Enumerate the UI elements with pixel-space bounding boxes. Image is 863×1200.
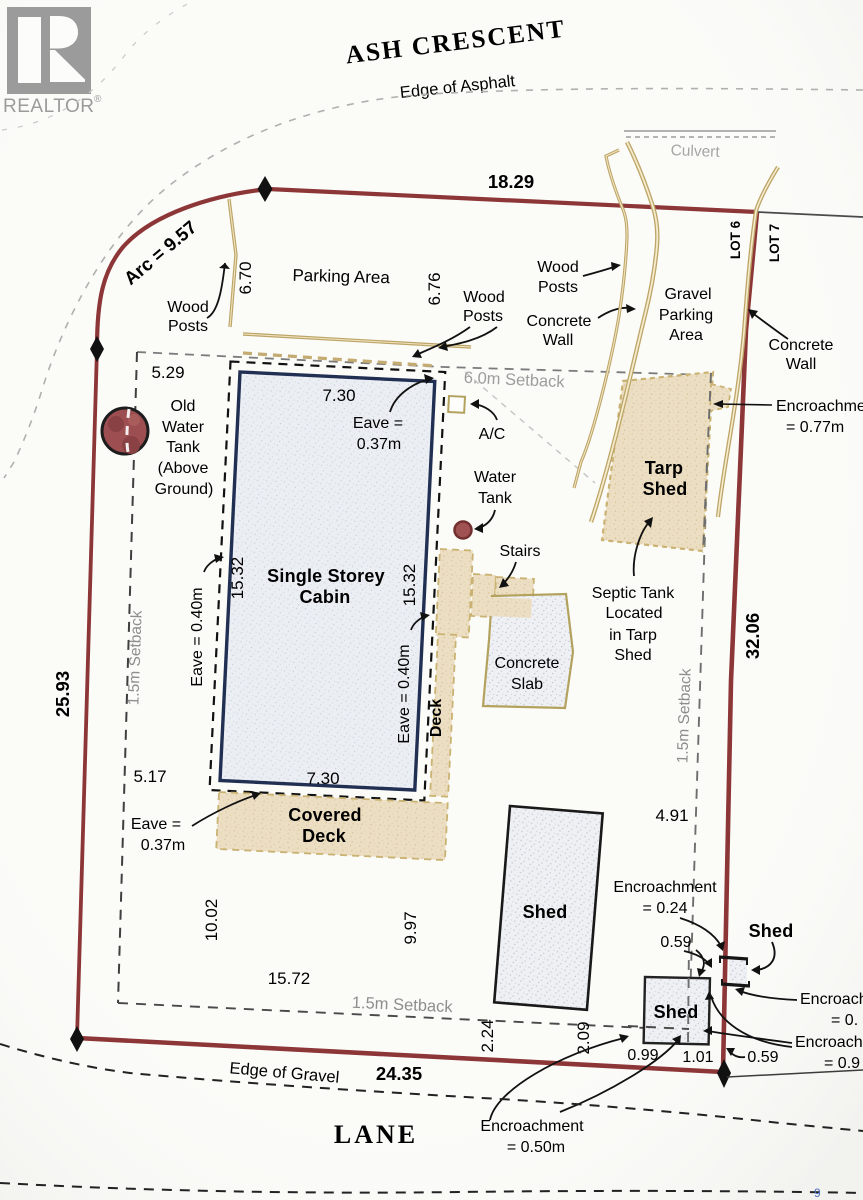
svg-text:= 0.77m: = 0.77m (786, 419, 844, 436)
svg-text:6.70: 6.70 (236, 261, 255, 294)
svg-text:10.02: 10.02 (202, 899, 221, 942)
svg-text:Wall: Wall (786, 356, 817, 373)
svg-text:Encroachment: Encroachment (613, 879, 717, 896)
svg-text:7.30: 7.30 (322, 386, 355, 405)
svg-text:18.29: 18.29 (488, 171, 534, 192)
svg-text:4.91: 4.91 (655, 806, 688, 825)
svg-text:Cabin: Cabin (299, 587, 350, 607)
svg-text:(Above: (Above (158, 460, 209, 477)
svg-text:Deck: Deck (302, 826, 347, 846)
svg-text:Encroachment: Encroachment (776, 398, 863, 415)
svg-text:REALTOR: REALTOR (3, 96, 95, 117)
svg-text:Culvert: Culvert (670, 142, 720, 161)
svg-text:9.97: 9.97 (401, 911, 420, 944)
svg-text:= 0.: = 0. (831, 1012, 858, 1029)
svg-text:25.93: 25.93 (52, 671, 73, 717)
svg-text:1.01: 1.01 (682, 1049, 713, 1066)
svg-text:Covered: Covered (288, 805, 361, 825)
svg-text:5.29: 5.29 (151, 363, 184, 382)
svg-text:5.17: 5.17 (133, 767, 166, 786)
svg-text:Deck: Deck (428, 699, 445, 737)
svg-text:Shed: Shed (643, 479, 688, 499)
svg-text:LANE: LANE (334, 1120, 418, 1149)
svg-text:= 0.24: = 0.24 (643, 900, 688, 917)
svg-text:Water: Water (162, 419, 205, 436)
svg-text:Eave =: Eave = (353, 415, 403, 432)
svg-text:Posts: Posts (463, 308, 503, 325)
svg-text:0.37m: 0.37m (141, 837, 185, 854)
svg-text:Stairs: Stairs (500, 543, 541, 560)
svg-text:in Tarp: in Tarp (609, 627, 657, 644)
svg-text:Shed: Shed (614, 647, 651, 664)
svg-text:Tank: Tank (478, 490, 513, 507)
svg-text:0.37m: 0.37m (357, 436, 401, 453)
svg-text:A/C: A/C (479, 426, 506, 443)
svg-text:15.32: 15.32 (400, 564, 419, 607)
svg-text:15.72: 15.72 (268, 969, 311, 988)
svg-text:Wood: Wood (537, 259, 579, 276)
svg-text:LOT 6: LOT 6 (728, 220, 743, 259)
svg-text:®: ® (94, 94, 102, 105)
svg-text:1.5m Setback: 1.5m Setback (125, 610, 145, 706)
svg-text:Concrete: Concrete (769, 337, 834, 354)
svg-text:0.59: 0.59 (660, 934, 691, 951)
svg-text:Encroachment: Encroachment (795, 1034, 863, 1051)
svg-text:Ground): Ground) (155, 481, 214, 498)
svg-text:= 0.50m: = 0.50m (507, 1139, 565, 1156)
svg-text:Septic Tank: Septic Tank (592, 585, 675, 602)
svg-text:1.5m Setback: 1.5m Setback (674, 668, 694, 764)
svg-text:Gravel: Gravel (664, 286, 711, 303)
svg-text:Tarp: Tarp (645, 458, 683, 478)
svg-text:Tank: Tank (166, 439, 201, 456)
svg-text:Water: Water (474, 469, 517, 486)
svg-text:Located: Located (606, 605, 663, 622)
svg-text:Slab: Slab (511, 676, 543, 693)
svg-text:7.30: 7.30 (306, 769, 339, 788)
svg-text:Concrete: Concrete (495, 655, 560, 672)
svg-text:Parking: Parking (659, 307, 713, 324)
svg-text:2.09: 2.09 (574, 1021, 593, 1054)
svg-text:Wood: Wood (167, 299, 209, 316)
svg-text:= 0.9: = 0.9 (824, 1055, 860, 1072)
svg-text:6.76: 6.76 (425, 272, 444, 305)
svg-text:Posts: Posts (538, 279, 578, 296)
svg-text:15.32: 15.32 (228, 557, 247, 600)
svg-text:32.06: 32.06 (742, 613, 763, 659)
svg-text:2.24: 2.24 (478, 1019, 497, 1052)
svg-text:Single Storey: Single Storey (267, 566, 385, 586)
svg-text:Concrete: Concrete (527, 313, 592, 330)
svg-text:24.35: 24.35 (376, 1063, 422, 1084)
svg-text:Wall: Wall (543, 332, 574, 349)
svg-text:Shed: Shed (523, 902, 568, 922)
svg-text:Shed: Shed (749, 921, 794, 941)
svg-text:0.59: 0.59 (747, 1049, 778, 1066)
svg-text:Shed: Shed (654, 1002, 699, 1022)
svg-text:Encroachment: Encroachment (480, 1118, 584, 1135)
svg-text:LOT 7: LOT 7 (767, 224, 782, 262)
svg-text:Encroachment: Encroachment (800, 991, 863, 1008)
svg-text:Eave = 0.40m: Eave = 0.40m (396, 644, 413, 743)
svg-text:Eave = 0.40m: Eave = 0.40m (189, 587, 206, 686)
svg-text:Wood: Wood (463, 289, 505, 306)
svg-text:9: 9 (814, 1186, 821, 1200)
svg-text:Parking Area: Parking Area (292, 266, 390, 288)
svg-text:Old: Old (171, 398, 196, 415)
svg-text:Eave =: Eave = (131, 816, 181, 833)
svg-text:Area: Area (669, 327, 703, 344)
svg-text:Posts: Posts (168, 318, 208, 335)
